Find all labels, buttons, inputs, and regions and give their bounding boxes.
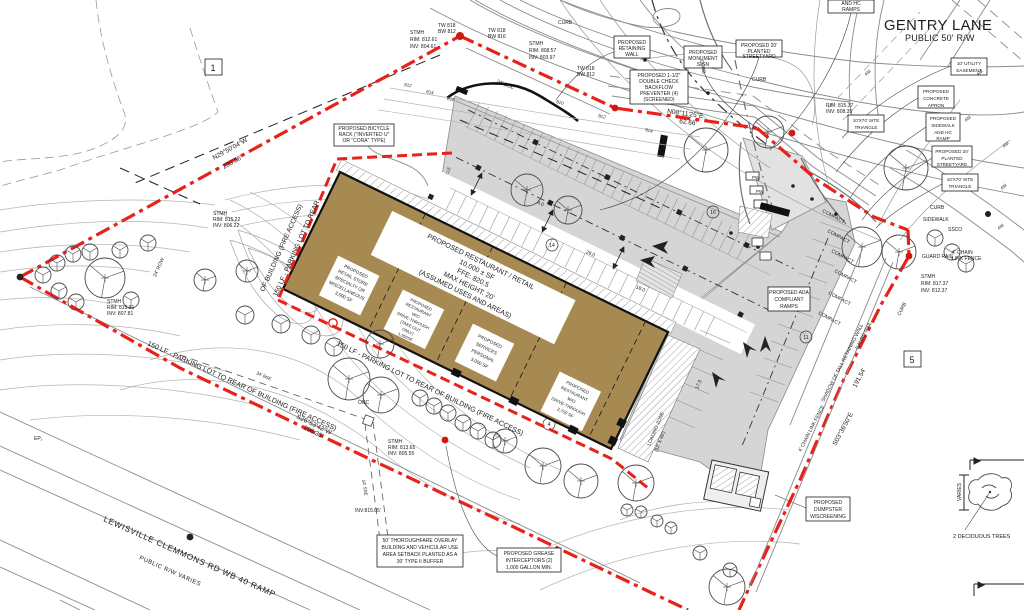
svg-text:VARIES: VARIES — [957, 482, 963, 501]
svg-text:RAMPS: RAMPS — [780, 304, 798, 310]
svg-text:TRIANGLE: TRIANGLE — [855, 125, 878, 130]
svg-text:SSCO: SSCO — [948, 227, 962, 233]
svg-text:STREETYARD: STREETYARD — [742, 54, 776, 60]
svg-text:30' TYPE II BUFFER: 30' TYPE II BUFFER — [397, 559, 444, 565]
svg-text:CURB: CURB — [558, 20, 573, 26]
svg-text:INTERCEPTORS (2): INTERCEPTORS (2) — [506, 558, 553, 564]
svg-text:11: 11 — [803, 335, 808, 341]
svg-text:RIM: 808.57: RIM: 808.57 — [529, 48, 556, 54]
svg-text:LINK FENCE: LINK FENCE — [952, 256, 982, 262]
svg-text:10'X70' SITE: 10'X70' SITE — [947, 177, 974, 182]
svg-text:PROPOSED ADA: PROPOSED ADA — [769, 290, 809, 296]
svg-text:INV:815.05': INV:815.05' — [355, 508, 381, 514]
svg-text:PROPOSED 20': PROPOSED 20' — [935, 149, 968, 154]
svg-text:SIDEWALK: SIDEWALK — [923, 217, 949, 223]
svg-text:INV: 803.97: INV: 803.97 — [529, 55, 555, 61]
svg-text:STMH: STMH — [410, 30, 425, 36]
svg-text:INV: 807.81: INV: 807.81 — [107, 311, 133, 317]
svg-text:PROPOSED: PROPOSED — [814, 500, 843, 506]
svg-text:RIM: 817.37: RIM: 817.37 — [921, 281, 948, 287]
svg-text:GUARD RAIL: GUARD RAIL — [922, 254, 953, 260]
svg-text:BW 816: BW 816 — [488, 34, 506, 40]
svg-text:CURB: CURB — [930, 205, 945, 211]
svg-text:RIM: 812.61: RIM: 812.61 — [410, 37, 437, 43]
svg-text:5: 5 — [909, 355, 914, 365]
svg-text:AREA SETBACK PLANTED AS A: AREA SETBACK PLANTED AS A — [383, 552, 458, 558]
svg-text:PW: PW — [756, 189, 764, 194]
svg-text:INV: 806.22: INV: 806.22 — [213, 223, 239, 229]
svg-text:INV: 805.55: INV: 805.55 — [388, 451, 414, 457]
svg-text:10'X70' SITE: 10'X70' SITE — [853, 118, 880, 123]
svg-text:AND HC: AND HC — [934, 130, 952, 135]
svg-text:DUMPSTER: DUMPSTER — [814, 507, 842, 513]
svg-text:STMH: STMH — [921, 274, 936, 280]
svg-text:50' THOROUGHFARE OVERLAY: 50' THOROUGHFARE OVERLAY — [383, 538, 458, 544]
svg-text:W/SCREENING: W/SCREENING — [810, 514, 846, 520]
svg-text:BW 812: BW 812 — [438, 29, 456, 35]
svg-text:PW: PW — [752, 175, 760, 180]
svg-text:PROPOSED: PROPOSED — [923, 89, 950, 94]
svg-text:ONC: ONC — [358, 400, 370, 406]
svg-text:PROPOSED GREASE: PROPOSED GREASE — [504, 551, 555, 557]
svg-text:PUBLIC 50' R/W: PUBLIC 50' R/W — [905, 33, 975, 43]
svg-text:STMH: STMH — [529, 41, 544, 47]
svg-text:1,000 GALLON MIN.: 1,000 GALLON MIN. — [506, 565, 552, 571]
svg-text:PLANTED: PLANTED — [941, 156, 963, 161]
svg-text:INV: 804.61: INV: 804.61 — [410, 44, 436, 50]
svg-text:2 DECIDUOUS TREES: 2 DECIDUOUS TREES — [953, 534, 1011, 540]
svg-text:4: 4 — [548, 422, 551, 428]
svg-text:16: 16 — [710, 210, 716, 216]
svg-text:PROPOSED: PROPOSED — [930, 116, 957, 121]
svg-text:GENTRY LANE: GENTRY LANE — [884, 18, 992, 34]
svg-text:CURB: CURB — [752, 77, 767, 83]
svg-text:(SCREENED): (SCREENED) — [643, 97, 674, 103]
svg-text:APRON: APRON — [928, 103, 944, 108]
svg-text:RAMPS: RAMPS — [842, 7, 860, 13]
svg-text:10' UTILITY: 10' UTILITY — [957, 61, 981, 66]
svg-text:INV: 808.35: INV: 808.35 — [826, 109, 852, 115]
svg-text:RAMP: RAMP — [936, 136, 949, 141]
svg-text:OR "CORA" TYPE): OR "CORA" TYPE) — [343, 138, 386, 144]
svg-text:CONCRETE: CONCRETE — [923, 96, 949, 101]
svg-text:EP₁: EP₁ — [34, 436, 43, 442]
svg-text:COMPLIANT: COMPLIANT — [774, 297, 803, 303]
svg-text:1: 1 — [210, 63, 215, 73]
svg-text:INV: 812.37: INV: 812.37 — [921, 288, 947, 294]
svg-text:TRIANGLE: TRIANGLE — [949, 184, 972, 189]
svg-text:14: 14 — [549, 243, 555, 249]
svg-text:WALL: WALL — [625, 52, 639, 58]
svg-text:BUILDING AND VEHICULAR USE: BUILDING AND VEHICULAR USE — [382, 545, 460, 551]
svg-text:SIDEWALK: SIDEWALK — [931, 123, 956, 128]
svg-text:STREETYARD: STREETYARD — [937, 162, 968, 167]
